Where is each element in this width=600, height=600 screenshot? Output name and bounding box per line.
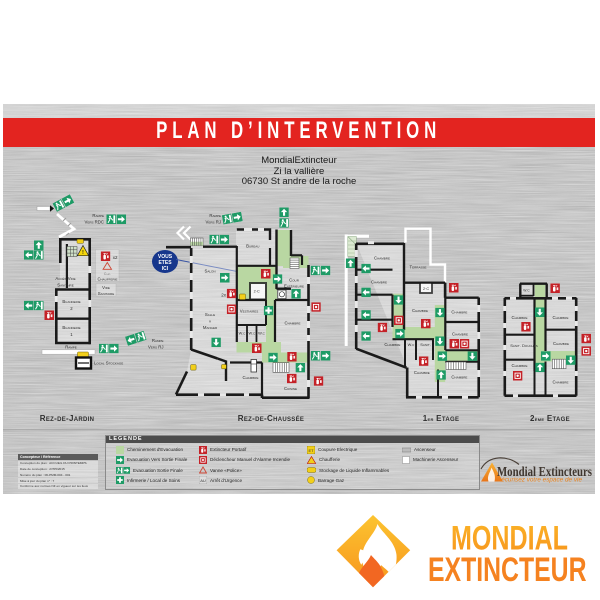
svg-text:Accès Vide: Accès Vide [55, 276, 75, 281]
svg-text:Local Stockage: Local Stockage [94, 361, 123, 366]
svg-text:Chambre: Chambre [451, 375, 467, 380]
svg-text:Sanitaire: Sanitaire [57, 283, 73, 288]
svg-text:Extérieure: Extérieure [284, 284, 304, 289]
svg-text:à: à [209, 319, 211, 324]
svg-text:Chambre: Chambre [512, 315, 528, 320]
svg-text:W.c: W.c [258, 331, 266, 336]
svg-text:Chambre: Chambre [384, 342, 400, 347]
svg-text:Buanderie: Buanderie [62, 299, 80, 304]
svg-text:W.c: W.c [248, 331, 256, 336]
svg-text:Salon: Salon [204, 269, 215, 274]
svg-text:Rampe: Rampe [65, 345, 77, 350]
svg-text:Rampe: Rampe [209, 213, 221, 218]
svg-text:Manger: Manger [203, 325, 218, 330]
svg-text:Rampe: Rampe [152, 338, 164, 343]
svg-text:Bureau: Bureau [246, 244, 259, 249]
svg-text:Vers RJ: Vers RJ [206, 220, 221, 225]
svg-text:x2: x2 [113, 255, 118, 260]
svg-text:Chambre: Chambre [412, 308, 428, 313]
svg-text:ICI: ICI [162, 266, 169, 272]
svg-text:2·C: 2·C [423, 287, 429, 291]
svg-text:Sanitaire: Sanitaire [98, 291, 114, 296]
svg-text:2·C: 2·C [254, 289, 260, 293]
svg-text:Chambre: Chambre [371, 280, 387, 285]
svg-text:Cour: Cour [289, 278, 300, 283]
svg-text:Chambre: Chambre [512, 363, 528, 368]
svg-text:2x: 2x [221, 293, 227, 298]
svg-text:Cuisine: Cuisine [284, 386, 297, 391]
svg-text:Terrasse: Terrasse [410, 265, 427, 270]
svg-text:W.c: W.c [239, 331, 247, 336]
svg-text:Vers RJ: Vers RJ [148, 345, 163, 350]
svg-text:Chambre: Chambre [553, 341, 569, 346]
svg-text:Chambre: Chambre [553, 380, 569, 385]
svg-text:Chambre: Chambre [285, 321, 301, 326]
svg-text:Salle: Salle [205, 312, 215, 317]
svg-text:Buanderie: Buanderie [62, 325, 80, 330]
svg-text:Chaufferie: Chaufferie [97, 276, 117, 281]
svg-text:Chambre: Chambre [374, 256, 390, 261]
svg-text:Chambre: Chambre [414, 370, 430, 375]
svg-text:Chambre: Chambre [243, 375, 259, 380]
svg-text:Vers RDC: Vers RDC [84, 220, 104, 225]
svg-text:Rampe: Rampe [92, 213, 104, 218]
svg-text:Vestiaires: Vestiaires [240, 309, 259, 314]
svg-text:Chambre: Chambre [451, 310, 467, 315]
svg-text:Vide: Vide [102, 285, 110, 290]
svg-text:W.C: W.C [523, 289, 530, 293]
svg-text:Chambre: Chambre [553, 315, 569, 320]
svg-text:EXTINCTEUR: EXTINCTEUR [428, 551, 587, 589]
svg-text:Sanit. Douches: Sanit. Douches [510, 343, 537, 348]
svg-text:Chambre: Chambre [452, 332, 468, 337]
svg-text:W.c: W.c [408, 342, 416, 347]
svg-text:Sanit.: Sanit. [420, 342, 431, 347]
